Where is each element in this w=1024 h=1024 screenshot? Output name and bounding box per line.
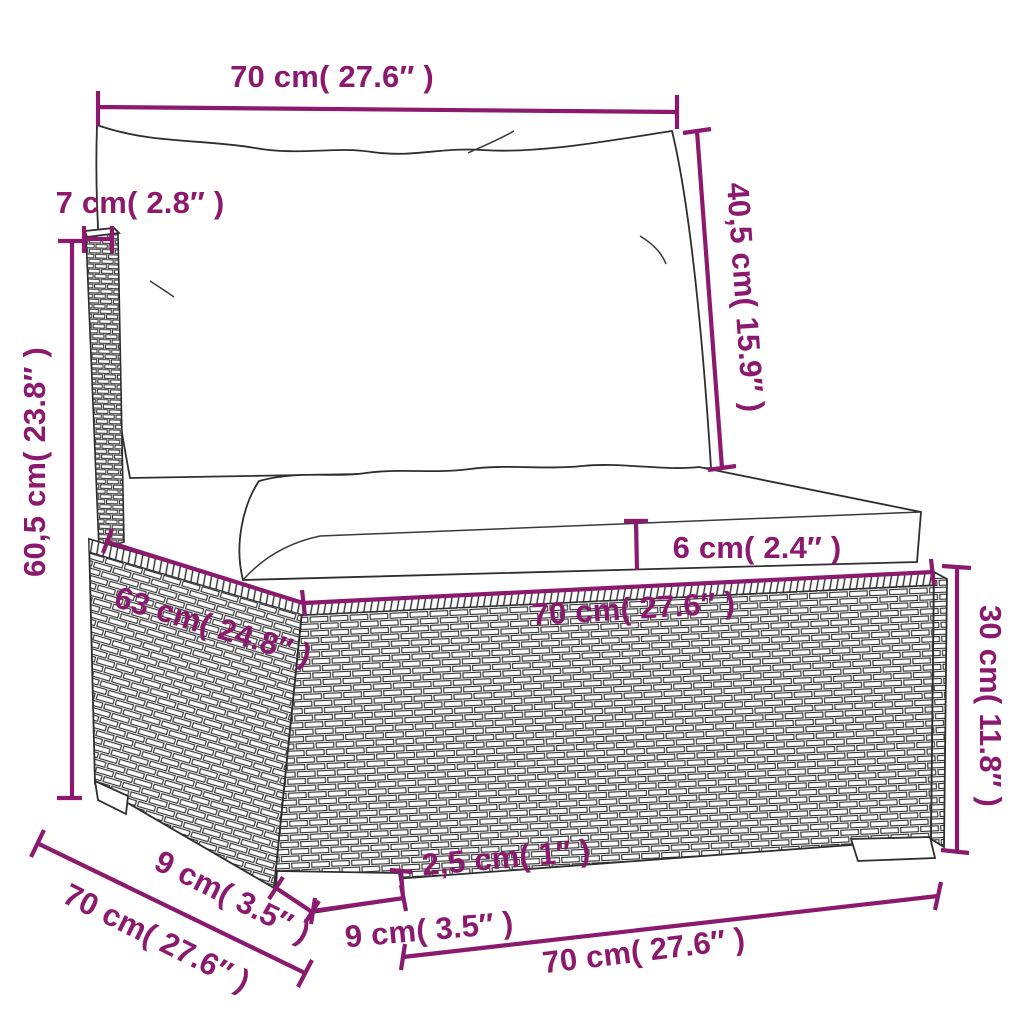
dim-label-back-panel-thickness: 7 cm( 2.8″ )	[56, 185, 225, 220]
sofa-dimension-drawing: 70 cm( 27.6″ ) 7 cm( 2.8″ ) 40,5 cm( 15.…	[0, 0, 1024, 1024]
dim-label-backrest-height: 60,5 cm( 23.8″ )	[17, 347, 52, 577]
backrest-panel	[86, 233, 124, 549]
dim-label-back-cushion-width: 70 cm( 27.6″ )	[230, 59, 434, 94]
back-cushion	[96, 125, 711, 478]
dimension-diagram-canvas: 70 cm( 27.6″ ) 7 cm( 2.8″ ) 40,5 cm( 15.…	[0, 0, 1024, 1024]
dim-backrest-height: 60,5 cm( 23.8″ )	[17, 241, 84, 798]
dim-label-base-height: 30 cm( 11.8″ )	[973, 605, 1008, 807]
dim-label-back-cushion-height: 40,5 cm( 15.9″ )	[720, 181, 771, 413]
sofa-line-art	[85, 125, 947, 913]
foot-front-right	[851, 837, 935, 861]
dim-label-seat-cushion-thickness: 6 cm( 2.4″ )	[673, 530, 842, 565]
base-right-face	[931, 572, 947, 847]
dim-back-cushion-width: 70 cm( 27.6″ )	[98, 59, 677, 129]
dim-base-height: 30 cm( 11.8″ )	[941, 566, 1008, 853]
